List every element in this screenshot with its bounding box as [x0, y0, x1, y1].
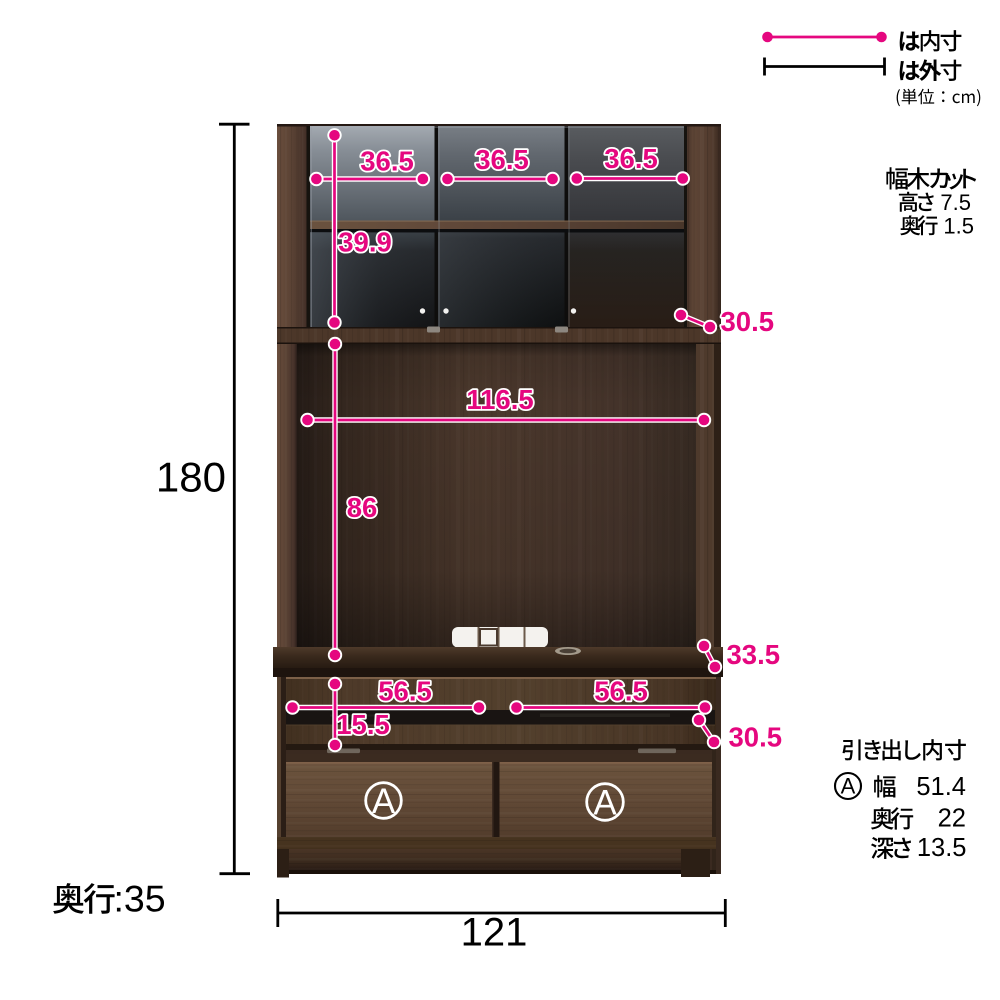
- svg-text:116.5: 116.5: [466, 384, 533, 415]
- svg-text:39.9: 39.9: [338, 226, 392, 257]
- svg-text:56.5: 56.5: [378, 676, 432, 707]
- svg-text:A: A: [372, 782, 396, 821]
- svg-text:36.5: 36.5: [475, 144, 529, 175]
- svg-text::35: :35: [114, 878, 166, 920]
- svg-text:22: 22: [938, 805, 966, 833]
- svg-text:1.5: 1.5: [943, 214, 974, 239]
- svg-text:56.5: 56.5: [594, 676, 648, 707]
- svg-text:30.5: 30.5: [729, 722, 783, 753]
- svg-text:36.5: 36.5: [360, 146, 414, 177]
- svg-text:33.5: 33.5: [727, 639, 781, 670]
- svg-text:36.5: 36.5: [604, 143, 658, 174]
- svg-text:180: 180: [156, 454, 226, 501]
- svg-text:121: 121: [461, 911, 528, 955]
- svg-text:86: 86: [347, 492, 378, 523]
- svg-text:30.5: 30.5: [721, 306, 775, 337]
- svg-text:7.5: 7.5: [940, 190, 971, 215]
- svg-text:A: A: [841, 774, 856, 799]
- svg-text:13.5: 13.5: [917, 834, 967, 862]
- svg-text:15.5: 15.5: [336, 709, 390, 740]
- svg-text:51.4: 51.4: [916, 773, 966, 801]
- svg-text:A: A: [593, 784, 617, 823]
